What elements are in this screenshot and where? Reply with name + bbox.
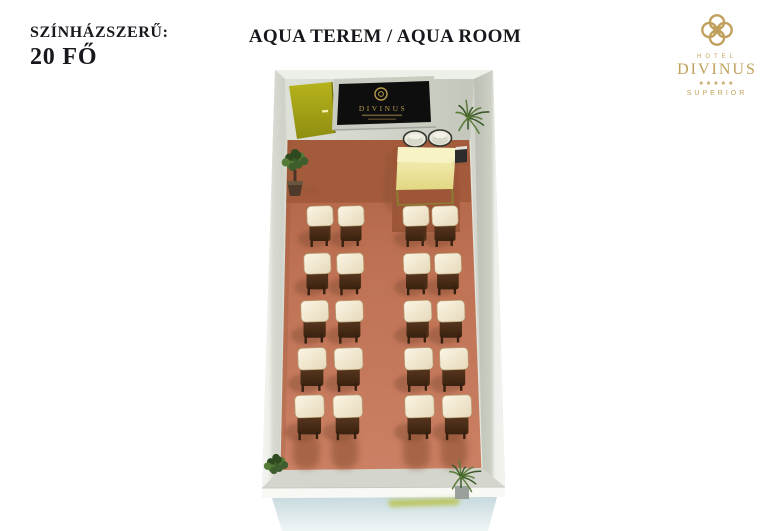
plant-pot [455, 486, 469, 499]
room-3d-render: DIVINUS [0, 0, 768, 531]
entrance-door [289, 82, 335, 139]
floorplan-page: SZÍNHÁZSZERŰ: 20 FŐ AQUA TEREM / AQUA RO… [0, 0, 768, 531]
screen-subtext-line1 [362, 115, 402, 117]
presenter-chair [429, 130, 452, 146]
presenter-chair [404, 131, 427, 147]
table-top-highlight [397, 147, 456, 163]
screen-panel [337, 81, 431, 125]
screen-subtext-line2 [368, 119, 396, 120]
presentation-screen: DIVINUS [332, 76, 436, 130]
plant-stem [294, 170, 297, 182]
screen-brand-text: DIVINUS [359, 104, 407, 113]
door-handle [322, 110, 328, 113]
front-exterior-face [272, 497, 497, 531]
av-equipment [454, 146, 468, 164]
